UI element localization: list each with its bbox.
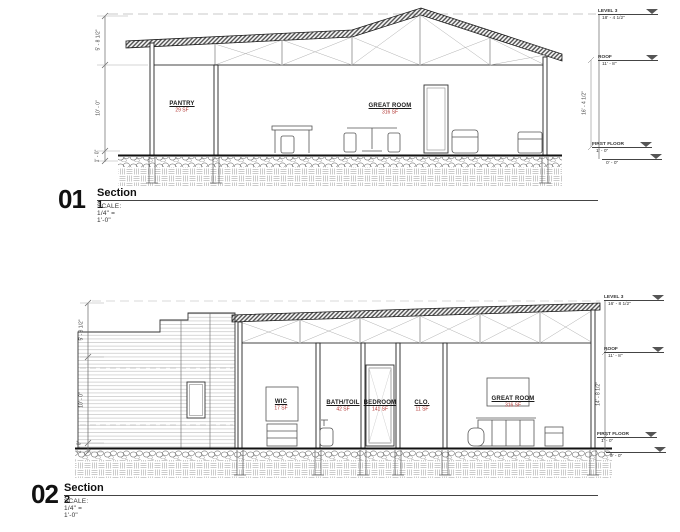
level-marker-level3-s1: LEVEL 3 18' - 4 1/2" [598, 2, 658, 21]
level-elevation: 18' - 4 1/2" [598, 16, 658, 21]
level-triangle-icon [645, 432, 657, 437]
room-label-wic: WIC [275, 399, 287, 405]
level-name: ROOF [604, 347, 618, 352]
room-area-closet: 11 SF [416, 408, 429, 413]
level-name: LEVEL 3 [598, 9, 617, 14]
level-marker-grade-s2: 0' - 0" [606, 440, 666, 459]
dim-left-top-s1: 5' - 8 1/2" [97, 29, 102, 50]
room-area-pantry: 29 SF [175, 109, 188, 114]
dim-left-bottom-s2: 1' - 0" [78, 441, 83, 454]
level-elevation: 11' - 8" [604, 354, 664, 359]
level-triangle-icon [652, 295, 664, 300]
room-area-great-room-s1: 316 SF [382, 111, 398, 116]
level-triangle-icon [654, 447, 666, 452]
level-marker-grade-s1: 0' - 0" [602, 147, 662, 166]
level-triangle-icon [646, 55, 658, 60]
room-label-pantry: PANTRY [169, 101, 194, 107]
section-drawing [0, 0, 680, 532]
level-elevation: 16' - 8 1/2" [604, 302, 664, 307]
level-elevation: 11' - 8" [598, 62, 658, 67]
level-elevation: 0' - 0" [606, 454, 666, 459]
room-label-bedroom: BEDROOM [364, 400, 397, 406]
dim-left-bottom-s1: 1' - 0" [96, 150, 101, 163]
room-label-closet: CLO. [414, 400, 429, 406]
level-triangle-icon [650, 154, 662, 159]
level-triangle-icon [652, 347, 664, 352]
room-label-great-room-s2: GREAT ROOM [492, 396, 535, 402]
level-elevation: 0' - 0" [602, 161, 662, 166]
level-name: ROOF [598, 55, 612, 60]
level-triangle-icon [646, 9, 658, 14]
room-area-wic: 17 SF [274, 407, 287, 412]
dim-left-mid-s1: 10' - 0" [97, 100, 102, 116]
dim-left-mid-s2: 10' - 0" [80, 392, 85, 408]
dim-left-top-s2: 5' - 8 1/2" [80, 319, 85, 340]
view-scale-s1: SCALE: 1/4" = 1'-0" [97, 203, 121, 224]
level-name: LEVEL 3 [604, 295, 623, 300]
room-label-great-room-s1: GREAT ROOM [369, 103, 412, 109]
room-area-bedroom: 141 SF [372, 408, 388, 413]
level-marker-roof-s1: ROOF 11' - 8" [598, 48, 658, 67]
room-area-great-room-s2: 316 SF [505, 404, 521, 409]
view-scale-s2: SCALE: 1/4" = 1'-0" [64, 498, 88, 519]
dim-right-s1: 16' - 4 1/2" [583, 91, 588, 115]
room-label-bath: BATH/TOIL [326, 400, 359, 406]
level-marker-level3-s2: LEVEL 3 16' - 8 1/2" [604, 288, 664, 307]
level-name: FIRST FLOOR [597, 432, 629, 437]
room-area-bath: 42 SF [336, 408, 349, 413]
dim-right-s2: 14' - 8 1/2" [597, 382, 602, 406]
architectural-sheet: PANTRY 29 SF GREAT ROOM 316 SF 5' - 8 1/… [0, 0, 680, 532]
level-marker-roof-s2: ROOF 11' - 8" [604, 340, 664, 359]
view-number-s2: 02 [31, 479, 58, 510]
view-number-s1: 01 [58, 184, 85, 215]
